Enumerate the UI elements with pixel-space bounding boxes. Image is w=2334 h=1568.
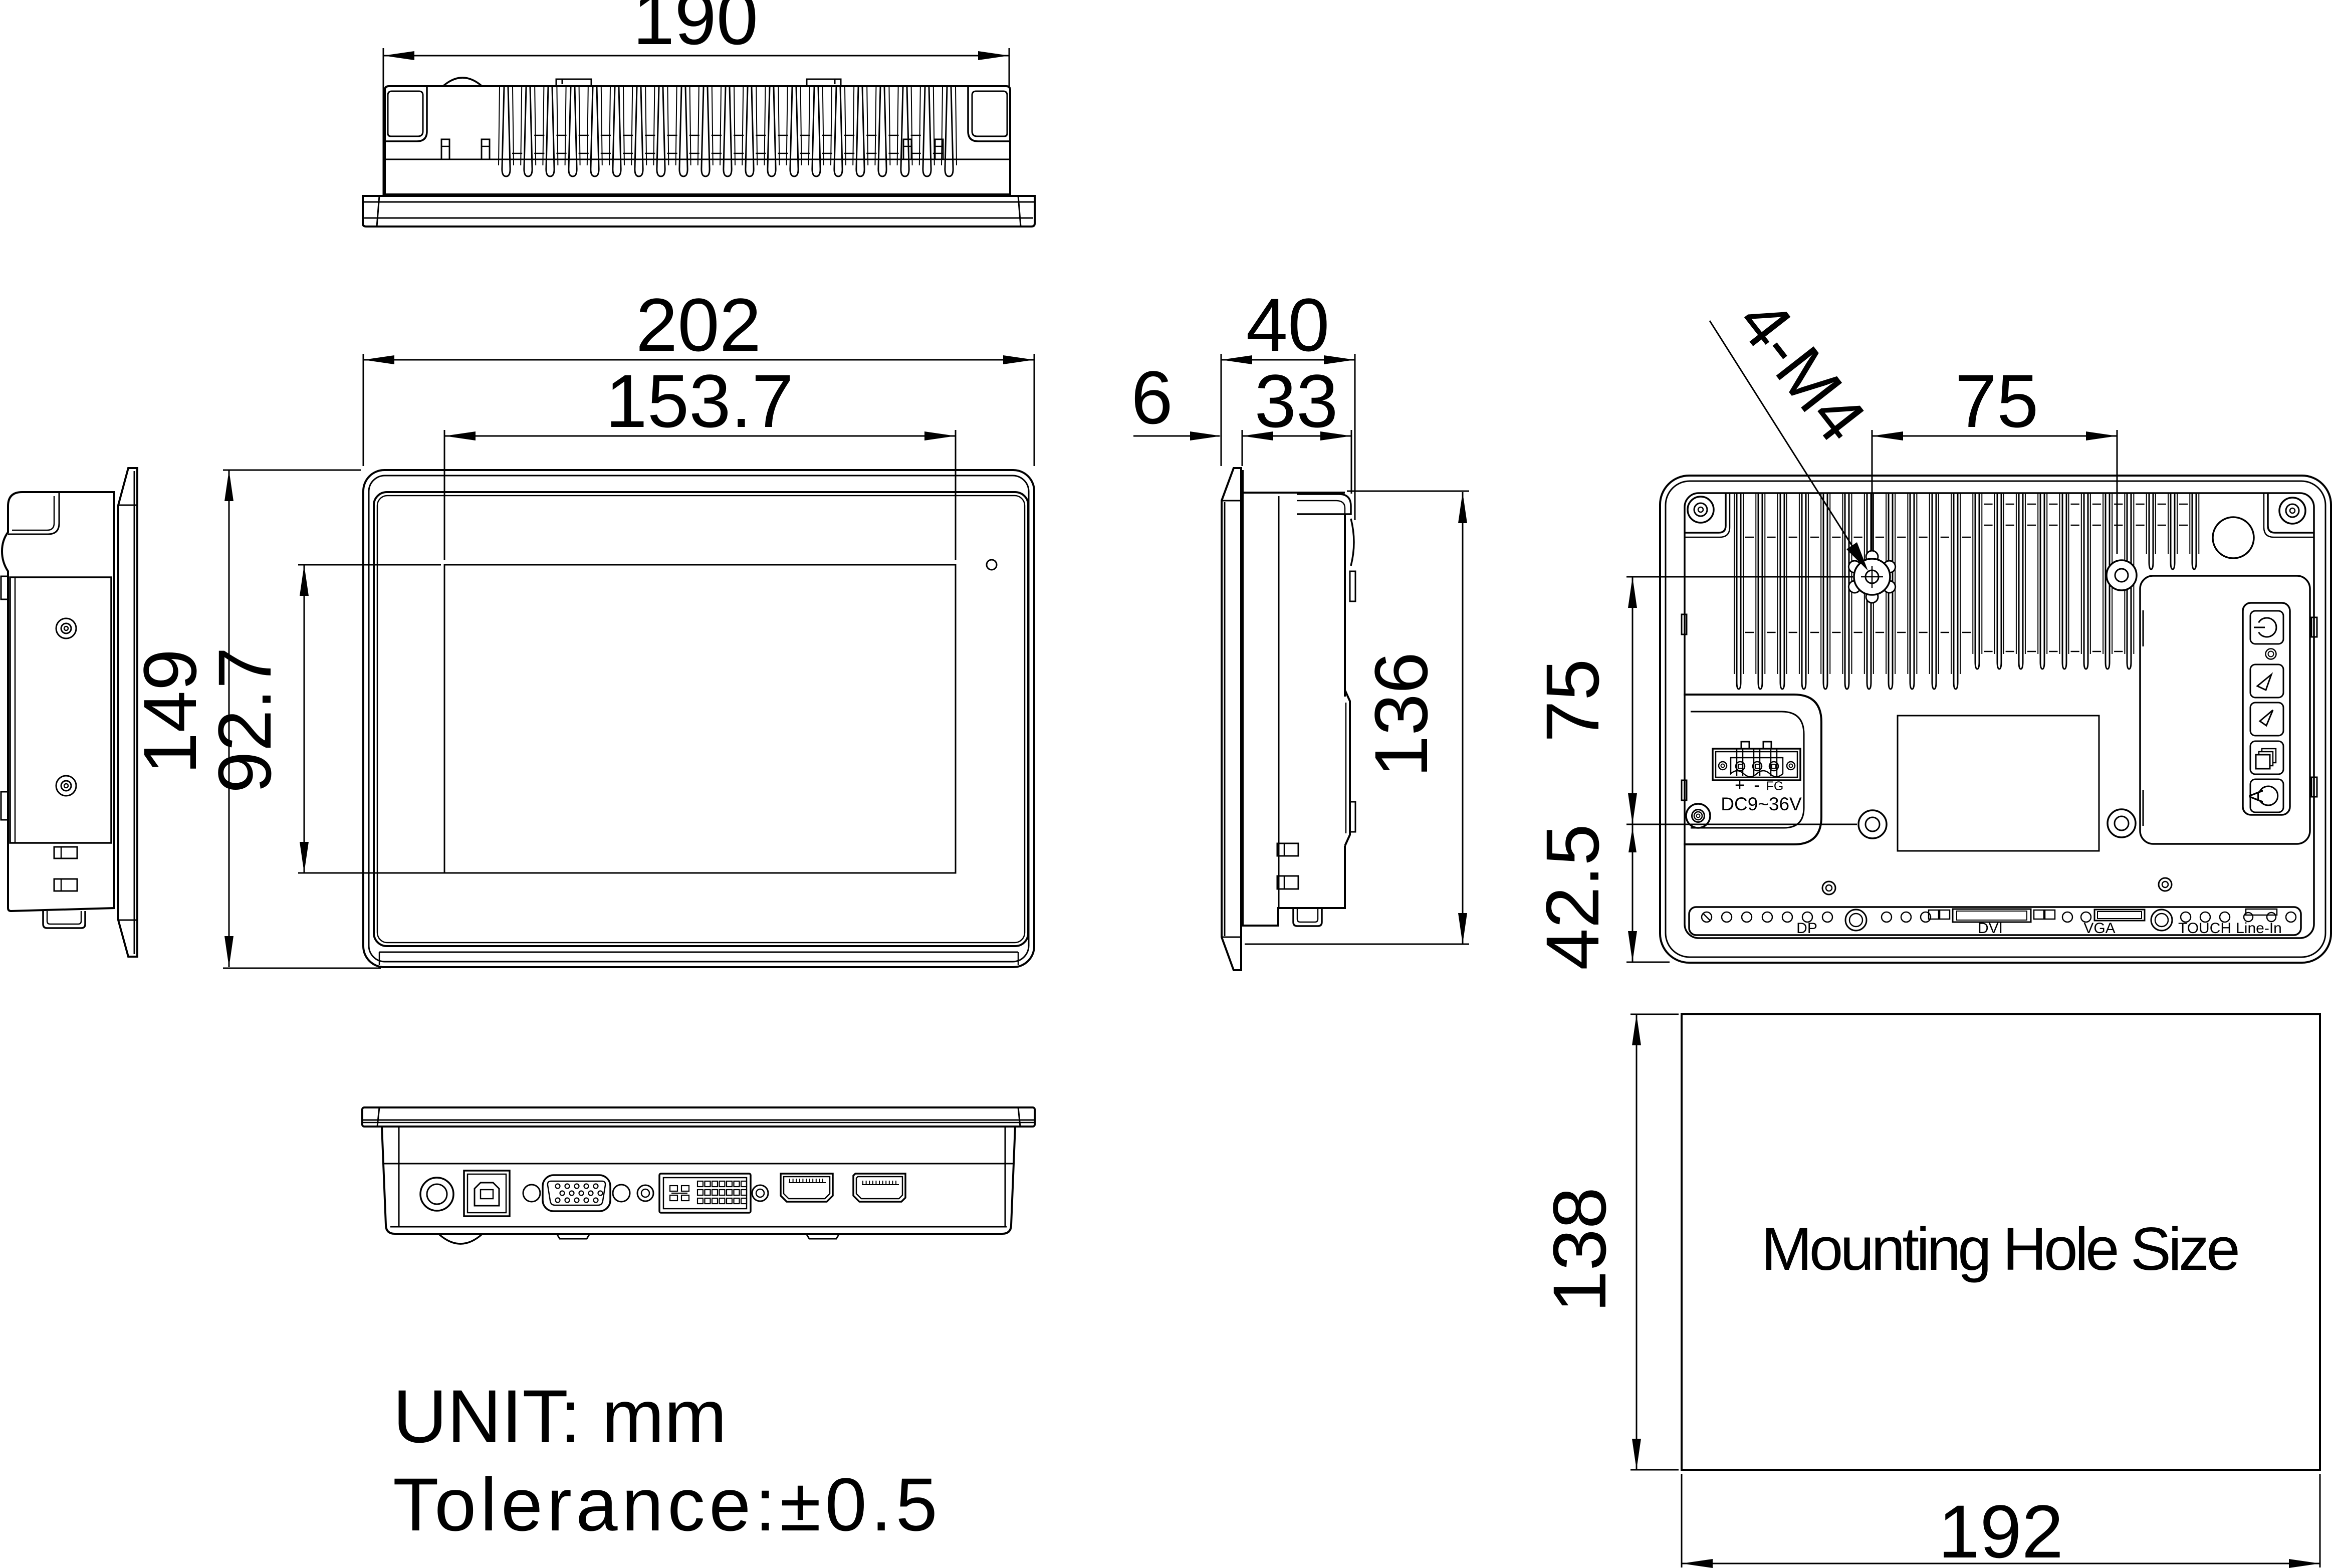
svg-text:VGA: VGA xyxy=(2083,920,2115,937)
svg-text:-: - xyxy=(1754,776,1759,795)
svg-text:136: 136 xyxy=(1359,652,1443,777)
svg-text:192: 192 xyxy=(1938,1489,2063,1568)
svg-text:6: 6 xyxy=(1131,355,1173,439)
svg-text:UNIT: mm: UNIT: mm xyxy=(393,1374,727,1458)
svg-text:40: 40 xyxy=(1246,283,1330,367)
svg-text:Line-In: Line-In xyxy=(2236,920,2282,937)
svg-text:Mounting Hole Size: Mounting Hole Size xyxy=(1761,1215,2238,1283)
svg-text:138: 138 xyxy=(1537,1187,1621,1312)
svg-text:+: + xyxy=(1735,776,1745,795)
svg-text:Tolerance:±0.5: Tolerance:±0.5 xyxy=(393,1462,942,1546)
svg-text:149: 149 xyxy=(128,649,212,774)
svg-text:DVI: DVI xyxy=(1978,920,2003,937)
svg-text:TOUCH: TOUCH xyxy=(2178,920,2231,937)
svg-text:33: 33 xyxy=(1255,359,1338,443)
svg-text:75: 75 xyxy=(1530,659,1614,743)
svg-text:92.7: 92.7 xyxy=(202,647,287,793)
svg-text:42.5: 42.5 xyxy=(1530,824,1614,970)
svg-text:FG: FG xyxy=(1766,779,1784,793)
svg-text:DC9~36V: DC9~36V xyxy=(1721,794,1802,814)
svg-text:202: 202 xyxy=(636,283,761,367)
svg-text:DP: DP xyxy=(1796,920,1817,937)
svg-text:A: A xyxy=(2245,789,2267,803)
svg-text:153.7: 153.7 xyxy=(605,359,793,443)
svg-text:190: 190 xyxy=(633,0,758,60)
svg-text:75: 75 xyxy=(1955,359,2039,443)
